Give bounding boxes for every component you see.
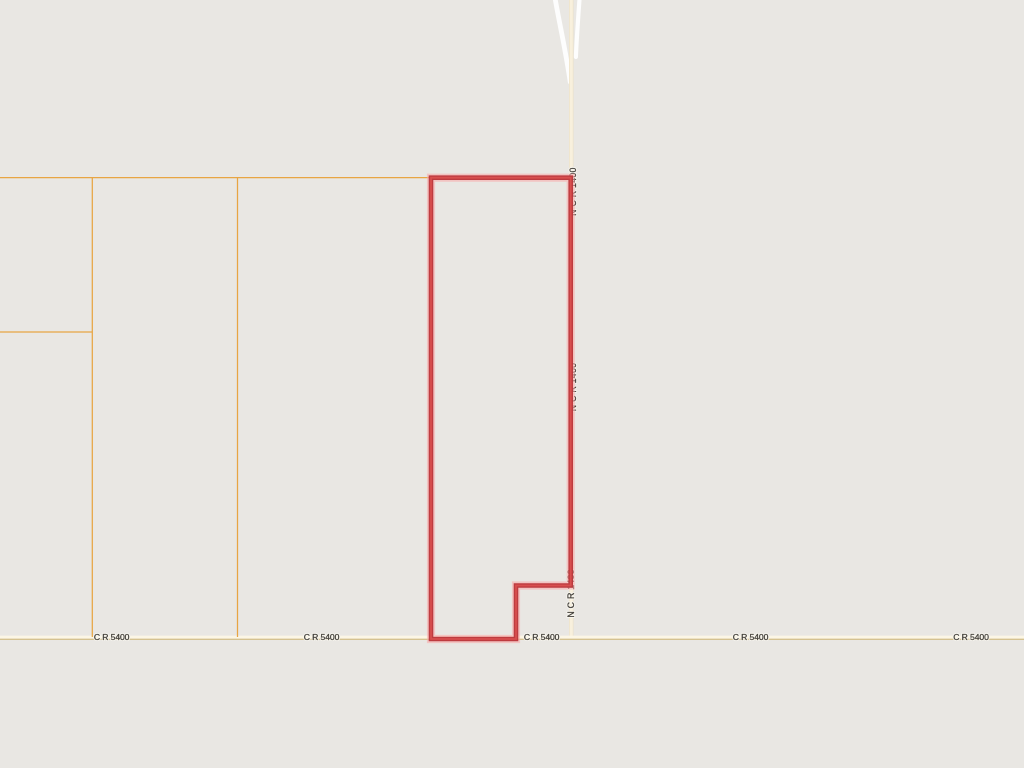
- svg-text:C R 5400: C R 5400: [524, 632, 560, 642]
- svg-text:C R 5400: C R 5400: [953, 632, 989, 642]
- svg-text:C R 5400: C R 5400: [733, 632, 769, 642]
- svg-text:C R 5400: C R 5400: [304, 632, 340, 642]
- svg-text:C R 5400: C R 5400: [94, 632, 130, 642]
